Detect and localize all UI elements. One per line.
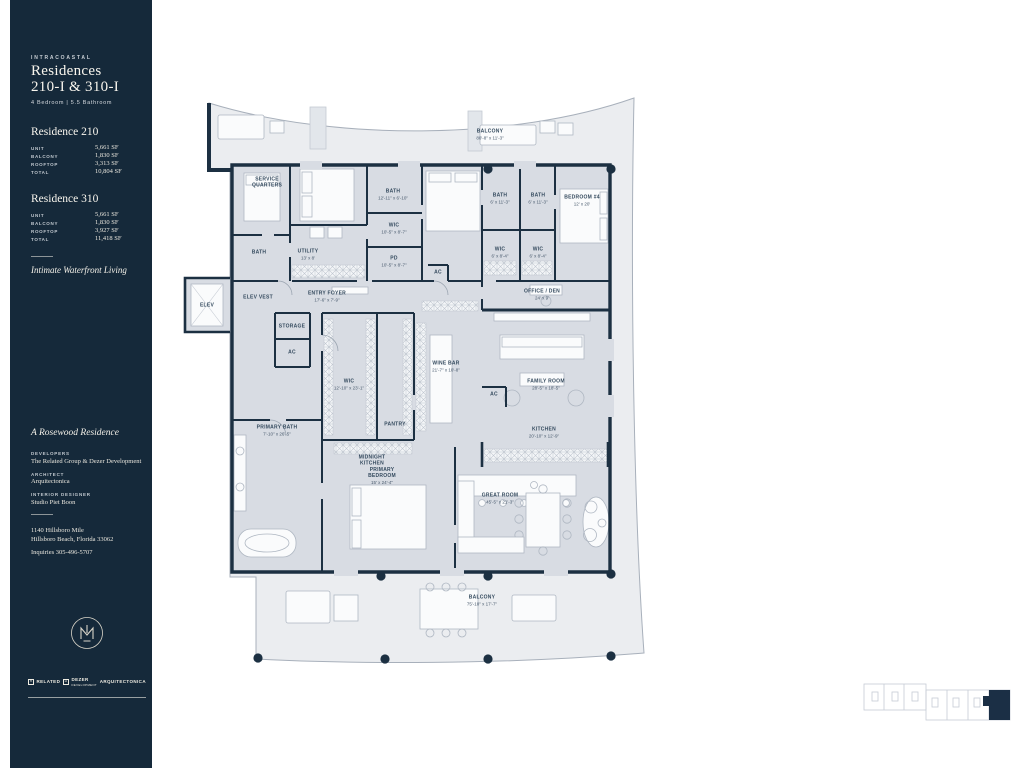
partner-logos-row: R RELATED D DEZER DEVELOPMENT ARQUITECTO… (28, 677, 146, 687)
balcony-table (270, 121, 284, 133)
bed-pillow (600, 218, 607, 240)
planter (310, 107, 326, 149)
credit-label: INTERIOR DESIGNER (31, 492, 149, 497)
brand-line: A Rosewood Residence (31, 428, 119, 438)
row-value: 11,418 SF (95, 235, 122, 242)
bed-pillow (352, 520, 361, 548)
row-label: BALCONY (31, 221, 58, 226)
balcony-dining-table (420, 589, 478, 629)
table-row: BALCONY1,830 SF (31, 152, 133, 160)
coffee-table (520, 373, 564, 386)
table-row: ROOFTOP3,313 SF (31, 160, 133, 168)
partner-name: RELATED (37, 679, 61, 684)
credit-value: The Related Group & Dezer Development (31, 458, 149, 465)
balcony-chair (334, 595, 358, 621)
row-value: 5,661 SF (95, 211, 118, 218)
bed-pillow (600, 192, 607, 214)
bed-pillow (246, 175, 278, 185)
bed-pillow (302, 172, 312, 193)
address-line2: Hillsboro Beach, Florida 33062 (31, 535, 113, 544)
dezer-square-icon: D (63, 679, 69, 685)
console-table (332, 287, 368, 294)
rosewood-monogram-icon (70, 616, 104, 650)
bed-pillow (302, 196, 312, 217)
row-value: 3,313 SF (95, 160, 118, 167)
address: 1140 Hillsboro Mile Hillsboro Beach, Flo… (31, 526, 113, 544)
washer (310, 227, 324, 238)
floorplan-area: SERVICE QUARTERSBATHUTILITY13' x 8'BATH1… (182, 95, 652, 665)
arquitectonica-logo: ARQUITECTONICA (100, 679, 146, 684)
balcony-sofa (286, 591, 330, 623)
dining-table (526, 493, 560, 547)
table-row: ROOFTOP3,927 SF (31, 227, 133, 235)
address-line1: 1140 Hillsboro Mile (31, 526, 113, 535)
residence-name: Residence 210 (31, 126, 133, 138)
divider (31, 514, 53, 515)
dezer-text: DEZER DEVELOPMENT (71, 677, 97, 687)
table-row: UNIT5,661 SF (31, 144, 133, 152)
balcony-chair (558, 123, 573, 135)
tagline: Intimate Waterfront Living (31, 265, 127, 275)
table-row: TOTAL10,804 SF (31, 168, 133, 176)
row-label: TOTAL (31, 170, 49, 175)
row-value: 1,830 SF (95, 152, 118, 159)
credits-block: DEVELOPERS The Related Group & Dezer Dev… (31, 444, 149, 506)
sofa (458, 537, 524, 553)
row-value: 5,661 SF (95, 144, 118, 151)
floorplan-drawing (182, 95, 652, 665)
credit-label: DEVELOPERS (31, 451, 149, 456)
desk (530, 285, 562, 295)
row-value: 1,830 SF (95, 219, 118, 226)
row-label: ROOFTOP (31, 229, 58, 234)
title-line2: 210-I & 310-I (31, 79, 119, 95)
page-title: Residences 210-I & 310-I (31, 63, 119, 95)
partner-name: ARQUITECTONICA (100, 679, 146, 684)
balcony-chair (540, 121, 555, 133)
stool (479, 500, 486, 507)
residence-area-table: UNIT5,661 SF BALCONY1,830 SF ROOFTOP3,92… (31, 211, 133, 243)
balcony-sofa (218, 115, 264, 139)
feature-oval (583, 497, 609, 547)
partner-name: DEZER (71, 677, 97, 682)
row-value: 3,927 SF (95, 227, 118, 234)
table-row: BALCONY1,830 SF (31, 219, 133, 227)
residence-310-block: Residence 310 UNIT5,661 SF BALCONY1,830 … (31, 193, 133, 243)
related-logo: R RELATED (28, 679, 60, 685)
divider (31, 256, 53, 257)
row-label: UNIT (31, 146, 44, 151)
row-label: UNIT (31, 213, 44, 218)
bed-bath-subtitle: 4 Bedroom | 5.5 Bathroom (31, 100, 112, 106)
residence-210-block: Residence 210 UNIT5,661 SF BALCONY1,830 … (31, 126, 133, 176)
credit-value: Arquitectonica (31, 478, 149, 485)
key-plan-highlight (983, 690, 1010, 720)
balcony-lounge (512, 595, 556, 621)
stool (500, 500, 507, 507)
residence-name: Residence 310 (31, 193, 133, 205)
partner-subname: DEVELOPMENT (71, 683, 97, 687)
media-console (494, 313, 590, 321)
key-plan (862, 676, 1014, 728)
bed-pillow (429, 173, 451, 182)
table-row: TOTAL11,418 SF (31, 235, 133, 243)
dezer-logo: D DEZER DEVELOPMENT (63, 677, 97, 687)
wine-bar-island (430, 335, 452, 423)
sidebar: INTRACOASTAL Residences 210-I & 310-I 4 … (10, 0, 152, 768)
residence-area-table: UNIT5,661 SF BALCONY1,830 SF ROOFTOP3,31… (31, 144, 133, 176)
bed-pillow (455, 173, 477, 182)
eyebrow: INTRACOASTAL (31, 55, 92, 61)
credit-label: ARCHITECT (31, 472, 149, 477)
balcony-sofa (480, 125, 536, 145)
credit-value: Studio Piet Boon (31, 499, 149, 506)
inquiries-line: Inquiries 305-496-5707 (31, 549, 93, 556)
row-value: 10,804 SF (95, 168, 122, 175)
bed-pillow (352, 488, 361, 516)
row-label: ROOFTOP (31, 162, 58, 167)
dryer (328, 227, 342, 238)
related-square-icon: R (28, 679, 34, 685)
vanity (234, 435, 246, 511)
row-label: BALCONY (31, 154, 58, 159)
bathtub (238, 529, 296, 557)
title-line1: Residences (31, 63, 119, 79)
row-label: TOTAL (31, 237, 49, 242)
table-row: UNIT5,661 SF (31, 211, 133, 219)
footer-divider (28, 697, 146, 698)
